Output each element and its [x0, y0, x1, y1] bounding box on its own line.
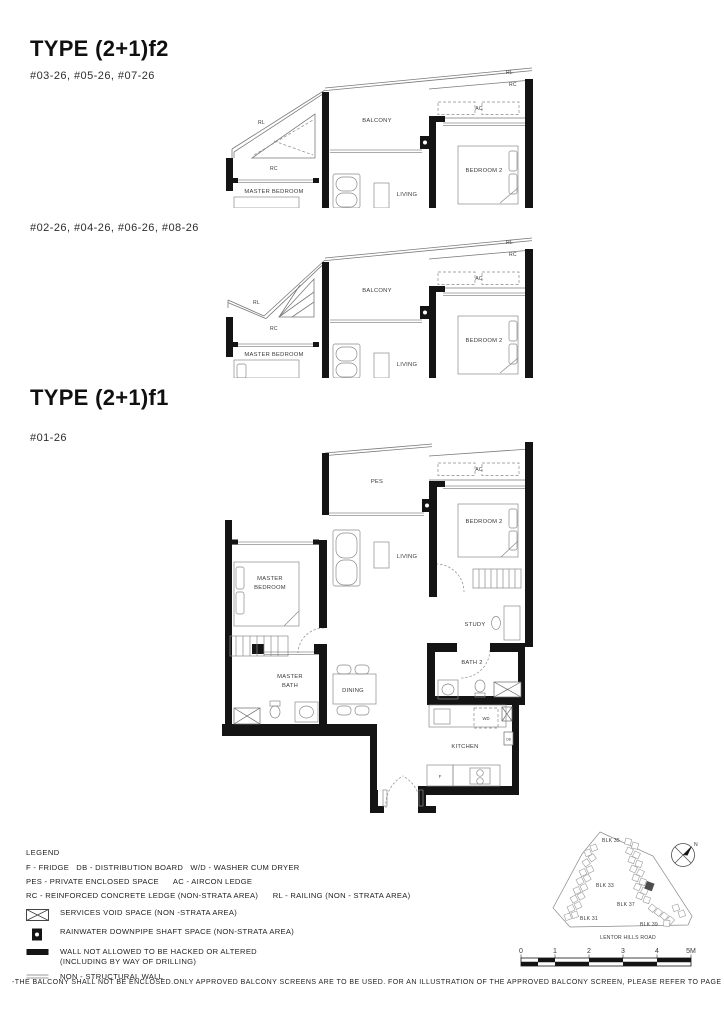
legend-line-1: F - FRIDGE DB - DISTRIBUTION BOARD W/D -… — [26, 863, 410, 872]
scale-bar: 0 1 2 3 4 5M — [515, 946, 700, 972]
legend-heading: LEGEND — [26, 848, 410, 857]
room-label-rl: RL — [253, 300, 260, 306]
compass-needle — [683, 846, 692, 856]
plan-room-labels: RL RC RL RC BALCONY AC BEDROOM 2 LIVING … — [244, 70, 516, 198]
room-label-living: LIVING — [397, 554, 418, 560]
room-label-bedroom2: BEDROOM 2 — [465, 519, 502, 525]
plan-windows — [232, 486, 525, 654]
floor-plan-f2-upper: RL RC RL RC BALCONY AC BEDROOM 2 LIVING … — [222, 62, 540, 208]
scale-ticks — [521, 955, 691, 959]
blk-35-label: BLK 35 — [602, 838, 620, 844]
room-label-bedroom2: BEDROOM 2 — [465, 338, 502, 344]
scale-1: 1 — [553, 948, 557, 955]
hack-wall-icon — [26, 947, 60, 956]
legend-line-2: PES - PRIVATE ENCLOSED SPACE AC - AIRCON… — [26, 877, 410, 886]
room-label-bedroom2: BEDROOM 2 — [465, 168, 502, 174]
legend-label: WALL NOT ALLOWED TO BE HACKED OR ALTERED… — [60, 947, 257, 966]
room-label-master-bedroom: MASTER BEDROOM — [244, 189, 303, 195]
site-blocks — [564, 838, 686, 927]
compass: N — [672, 842, 699, 867]
road-label: LENTOR HILLS ROAD — [600, 935, 656, 941]
blk-39-label: BLK 39 — [640, 922, 658, 928]
plan-walls — [222, 442, 533, 813]
room-label-rc: RC — [509, 82, 517, 88]
legend-row-services-void: SERVICES VOID SPACE (NON -STRATA AREA) — [26, 908, 410, 921]
brochure-page: TYPE (2+1)f2 #03-26, #05-26, #07-26 #02-… — [0, 0, 724, 1024]
scale-0: 0 — [519, 948, 523, 955]
blk-31-label: BLK 31 — [580, 916, 598, 922]
plan-outline — [232, 68, 532, 158]
room-label-wd: WD — [483, 716, 490, 721]
room-label-living: LIVING — [397, 362, 418, 368]
blk-33-label: BLK 33 — [596, 883, 614, 889]
plan-room-labels: RL RC RL RC BALCONY AC BEDROOM 2 LIVING … — [244, 240, 516, 368]
floor-plan-f2-lower: RL RC RL RC BALCONY AC BEDROOM 2 LIVING … — [222, 232, 540, 378]
scale-numbers: 0 1 2 3 4 5M — [519, 948, 696, 955]
type-f2-units-lower: #02-26, #04-26, #06-26, #08-26 — [30, 222, 199, 234]
room-label-rl: RL — [258, 120, 265, 126]
room-label-master-bedroom: MASTER BEDROOM — [244, 352, 303, 358]
site-map: BLK 35 BLK 33 BLK 31 BLK 37 BLK 39 LENTO… — [540, 828, 724, 946]
plan-outline — [228, 238, 532, 319]
room-label-kitchen: KITCHEN — [451, 744, 478, 750]
type-f1-title: TYPE (2+1)f1 — [30, 385, 169, 411]
room-label-balcony: BALCONY — [362, 118, 391, 124]
balcony-disclaimer: -THE BALCONY SHALL NOT BE ENCLOSED.ONLY … — [12, 979, 714, 986]
room-label-rc: RC — [509, 252, 517, 258]
type-f2-title: TYPE (2+1)f2 — [30, 36, 169, 62]
room-label-balcony: BALCONY — [362, 288, 391, 294]
plan-walls — [226, 249, 533, 378]
scale-bar-blocks — [521, 958, 691, 966]
legend-row-rainwater-downpipe: RAINWATER DOWNPIPE SHAFT SPACE (NON-STRA… — [26, 927, 410, 941]
compass-north-label: N — [694, 842, 698, 848]
scale-4: 4 — [655, 948, 659, 955]
legend-symbol-rows: SERVICES VOID SPACE (NON -STRATA AREA) R… — [26, 908, 410, 982]
rainwater-downpipe-symbol — [420, 306, 430, 319]
services-void-icon — [26, 908, 60, 921]
room-label-ac: AC — [475, 106, 483, 112]
room-label-rc: RC — [270, 166, 278, 172]
room-label-bedroom: BEDROOM — [254, 585, 286, 591]
rainwater-downpipe-symbol — [420, 136, 430, 149]
room-label-fridge: F — [439, 774, 442, 779]
plan-outline — [325, 444, 530, 480]
legend-label: RAINWATER DOWNPIPE SHAFT SPACE (NON-STRA… — [60, 927, 294, 937]
room-label-ac: AC — [475, 276, 483, 282]
room-label-rl: RL — [506, 240, 513, 246]
room-label-rc: RC — [270, 326, 278, 332]
legend-line-3: RC - REINFORCED CONCRETE LEDGE (NON-STRA… — [26, 891, 410, 900]
room-label-pes: PES — [371, 479, 383, 485]
room-label-bath: BATH — [282, 683, 298, 689]
type-f1-units: #01-26 — [30, 432, 67, 444]
legend-row-hack-wall: WALL NOT ALLOWED TO BE HACKED OR ALTERED… — [26, 947, 410, 966]
room-label-living: LIVING — [397, 192, 418, 198]
room-label-db: DB — [506, 738, 511, 742]
blk-37-label: BLK 37 — [617, 902, 635, 908]
legend-label: SERVICES VOID SPACE (NON -STRATA AREA) — [60, 908, 237, 918]
room-label-dining: DINING — [342, 688, 364, 694]
rainwater-downpipe-icon — [26, 927, 60, 941]
scale-3: 3 — [621, 948, 625, 955]
room-label-bath2: BATH 2 — [461, 660, 482, 666]
floor-plan-f1: PES AC BEDROOM 2 LIVING MASTER BEDROOM S… — [222, 440, 540, 816]
room-label-master2: MASTER — [277, 674, 303, 680]
room-label-master: MASTER — [257, 576, 283, 582]
room-label-rl: RL — [506, 70, 513, 76]
room-label-ac: AC — [475, 467, 483, 473]
scale-5m: 5M — [686, 948, 696, 955]
scale-2: 2 — [587, 948, 591, 955]
legend: LEGEND F - FRIDGE DB - DISTRIBUTION BOAR… — [26, 848, 410, 988]
rainwater-downpipe-symbol — [422, 499, 432, 512]
room-label-study: STUDY — [465, 622, 486, 628]
plan-fixtures — [234, 146, 518, 208]
type-f2-units-upper: #03-26, #05-26, #07-26 — [30, 70, 155, 82]
